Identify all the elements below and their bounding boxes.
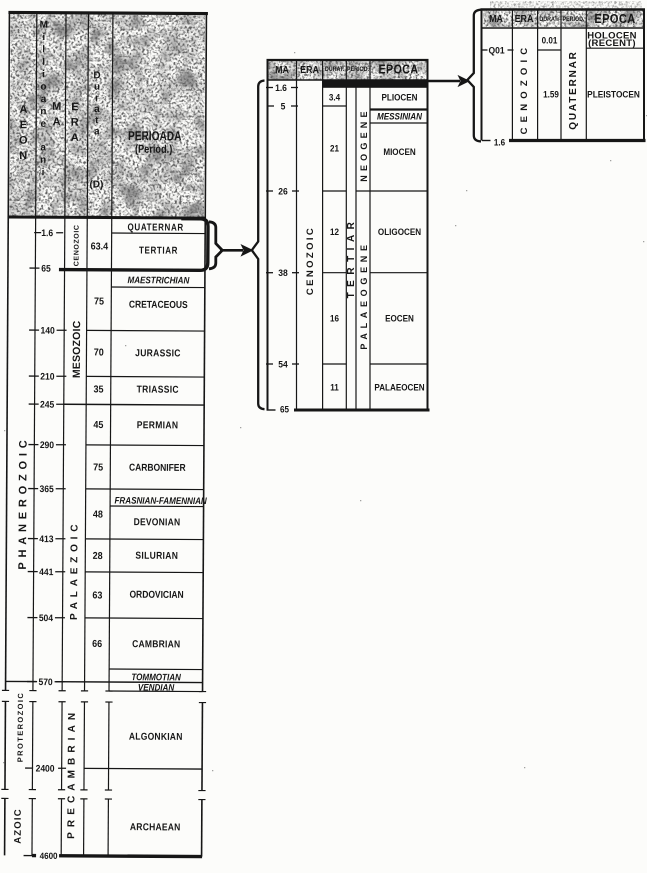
svg-text:(Period.): (Period.): [135, 144, 172, 156]
svg-text:PERIOD.: PERIOD.: [347, 67, 369, 73]
svg-text:ERA: ERA: [300, 64, 319, 76]
svg-text:365: 365: [40, 484, 54, 495]
svg-text:290: 290: [40, 440, 54, 451]
svg-text:75: 75: [94, 296, 105, 308]
svg-text:504: 504: [39, 613, 53, 624]
svg-text:75: 75: [93, 462, 104, 474]
svg-text:66: 66: [92, 639, 102, 651]
svg-text:i: i: [42, 32, 45, 43]
svg-text:PERIOADA: PERIOADA: [128, 129, 182, 144]
svg-text:65: 65: [280, 404, 289, 415]
svg-text:PRECAMBRIAN: PRECAMBRIAN: [66, 708, 78, 839]
svg-text:63.4: 63.4: [91, 241, 109, 253]
svg-text:E: E: [20, 119, 27, 131]
svg-text:CRETACEOUS: CRETACEOUS: [129, 299, 188, 310]
svg-text:PALAEOGENE: PALAEOGENE: [359, 240, 369, 349]
svg-text:21: 21: [330, 143, 339, 154]
svg-text:1.6: 1.6: [41, 228, 53, 239]
svg-text:a: a: [41, 94, 47, 105]
svg-text:441: 441: [39, 567, 53, 578]
svg-text:A: A: [19, 104, 27, 116]
svg-text:54: 54: [278, 359, 287, 370]
svg-text:MIOCEN: MIOCEN: [383, 147, 415, 158]
svg-text:TERTIAR: TERTIAR: [139, 245, 178, 256]
svg-text:i: i: [42, 167, 45, 178]
svg-text:DURAT.: DURAT.: [539, 17, 559, 23]
svg-text:1.6: 1.6: [494, 137, 505, 148]
svg-text:ARCHAEAN: ARCHAEAN: [130, 822, 181, 833]
svg-text:ORDOVICIAN: ORDOVICIAN: [129, 589, 184, 600]
svg-text:PROTEROZOIC: PROTEROZOIC: [16, 692, 25, 762]
svg-text:JURASSIC: JURASSIC: [135, 348, 181, 359]
svg-text:O: O: [19, 135, 28, 147]
svg-text:MA: MA: [275, 64, 289, 76]
svg-text:PHANEROZOIC: PHANEROZOIC: [17, 435, 30, 569]
svg-text:i: i: [42, 69, 45, 80]
svg-text:R: R: [71, 117, 79, 129]
svg-text:CENOZOIC: CENOZOIC: [519, 43, 530, 135]
svg-text:38: 38: [278, 268, 287, 279]
svg-text:(RECENT): (RECENT): [588, 38, 636, 49]
svg-text:DEVONIAN: DEVONIAN: [134, 517, 181, 528]
svg-text:QUATERNAR: QUATERNAR: [568, 50, 579, 129]
svg-text:65: 65: [41, 263, 51, 274]
svg-text:SILURIAN: SILURIAN: [135, 550, 178, 561]
svg-text:r: r: [95, 93, 99, 104]
svg-text:QUATERNAR: QUATERNAR: [128, 221, 184, 232]
svg-text:l: l: [42, 44, 45, 55]
svg-text:245: 245: [40, 399, 54, 410]
svg-text:OLIGOCEN: OLIGOCEN: [378, 227, 421, 238]
svg-text:3.4: 3.4: [329, 92, 340, 103]
svg-text:4600: 4600: [40, 850, 58, 861]
svg-text:a: a: [94, 104, 100, 115]
svg-text:210: 210: [40, 371, 54, 382]
svg-text:16: 16: [330, 313, 339, 324]
svg-text:MESSINIAN: MESSINIAN: [377, 111, 423, 122]
svg-text:o: o: [40, 82, 46, 93]
svg-text:5: 5: [281, 101, 286, 112]
svg-text:a: a: [40, 142, 46, 153]
svg-text:VENDIAN: VENDIAN: [138, 682, 175, 693]
svg-text:PLIOCEN: PLIOCEN: [382, 92, 418, 103]
svg-text:140: 140: [40, 325, 54, 336]
svg-text:N: N: [19, 150, 27, 162]
svg-text:M: M: [40, 20, 48, 31]
svg-text:63: 63: [92, 590, 102, 602]
svg-text:PLEISTOCEN: PLEISTOCEN: [587, 89, 640, 99]
svg-text:CARBONIFER: CARBONIFER: [129, 462, 186, 473]
svg-text:ERA: ERA: [515, 13, 534, 25]
svg-text:n: n: [40, 106, 46, 117]
svg-text:413: 413: [39, 534, 53, 545]
svg-text:PERIOD.: PERIOD.: [563, 17, 585, 23]
svg-text:EOCEN: EOCEN: [385, 313, 414, 324]
svg-text:A: A: [71, 132, 79, 144]
svg-text:CENOZOIC: CENOZOIC: [73, 224, 80, 266]
svg-text:NEOGENE: NEOGENE: [359, 107, 369, 181]
svg-text:26: 26: [278, 186, 287, 197]
svg-text:FRASNIAN-FAMENNIAN: FRASNIAN-FAMENNIAN: [114, 495, 207, 506]
svg-text:MESOZOIC: MESOZOIC: [71, 320, 83, 378]
svg-text:M: M: [52, 101, 61, 113]
svg-text:48: 48: [93, 509, 103, 521]
svg-text:45: 45: [93, 420, 104, 432]
svg-text:PALAEOCEN: PALAEOCEN: [374, 382, 424, 393]
svg-text:11: 11: [330, 382, 339, 393]
svg-text:ALGONKIAN: ALGONKIAN: [129, 731, 183, 742]
svg-text:E: E: [71, 101, 78, 113]
svg-text:2400: 2400: [36, 763, 55, 774]
svg-text:DURAT.: DURAT.: [325, 67, 345, 73]
svg-text:28: 28: [93, 551, 103, 563]
svg-text:1.59: 1.59: [543, 89, 559, 100]
svg-text:35: 35: [94, 384, 105, 396]
svg-text:CENOZOIC: CENOZOIC: [305, 226, 316, 295]
svg-text:a: a: [94, 126, 100, 137]
svg-text:e: e: [40, 119, 46, 130]
svg-text:CAMBRIAN: CAMBRIAN: [132, 639, 180, 650]
svg-text:D: D: [93, 70, 100, 81]
svg-text:n: n: [40, 155, 46, 166]
svg-text:MA: MA: [489, 13, 503, 25]
svg-text:u: u: [94, 82, 100, 93]
svg-text:PERMIAN: PERMIAN: [137, 420, 179, 431]
svg-text:12: 12: [330, 227, 339, 238]
svg-text:TERTIAR: TERTIAR: [346, 217, 357, 299]
svg-text:70: 70: [94, 347, 104, 359]
svg-text:MAESTRICHIAN: MAESTRICHIAN: [127, 275, 189, 286]
svg-text:0.01: 0.01: [542, 35, 558, 46]
svg-text:(D): (D): [89, 179, 103, 190]
svg-text:A: A: [53, 116, 61, 128]
svg-text:l: l: [42, 57, 45, 68]
svg-text:PALAEZOIC: PALAEZOIC: [69, 520, 81, 620]
svg-text:1.6: 1.6: [275, 83, 287, 94]
svg-text:Q01: Q01: [488, 45, 504, 56]
svg-text:TRIASSIC: TRIASSIC: [137, 384, 179, 395]
svg-text:570: 570: [38, 677, 52, 688]
svg-text:EPOCA: EPOCA: [594, 11, 635, 26]
svg-text:AZOIC: AZOIC: [13, 808, 24, 844]
svg-text:EPOCA: EPOCA: [379, 63, 419, 77]
